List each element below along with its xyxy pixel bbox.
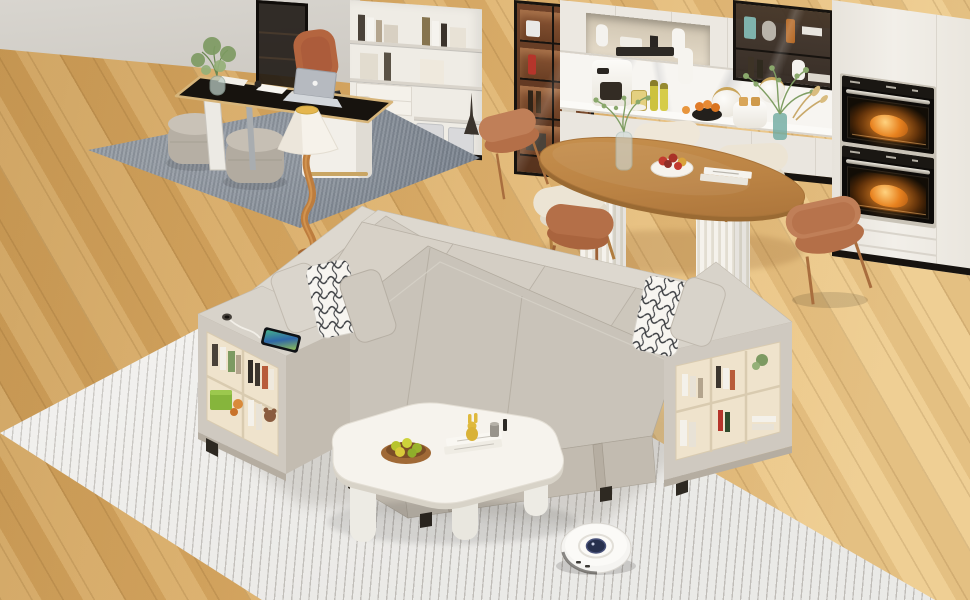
- robot-vacuum: [556, 523, 636, 575]
- desk-decor: [255, 81, 262, 88]
- office-area: [166, 27, 392, 190]
- vacuum-hub: [587, 539, 606, 553]
- sofa-foot: [600, 486, 612, 502]
- laptop: [283, 67, 347, 108]
- lamp-gold-top: [296, 106, 318, 114]
- living-room-scene: [0, 0, 970, 600]
- coffee-table: [327, 403, 577, 544]
- furniture-layer: [0, 0, 970, 600]
